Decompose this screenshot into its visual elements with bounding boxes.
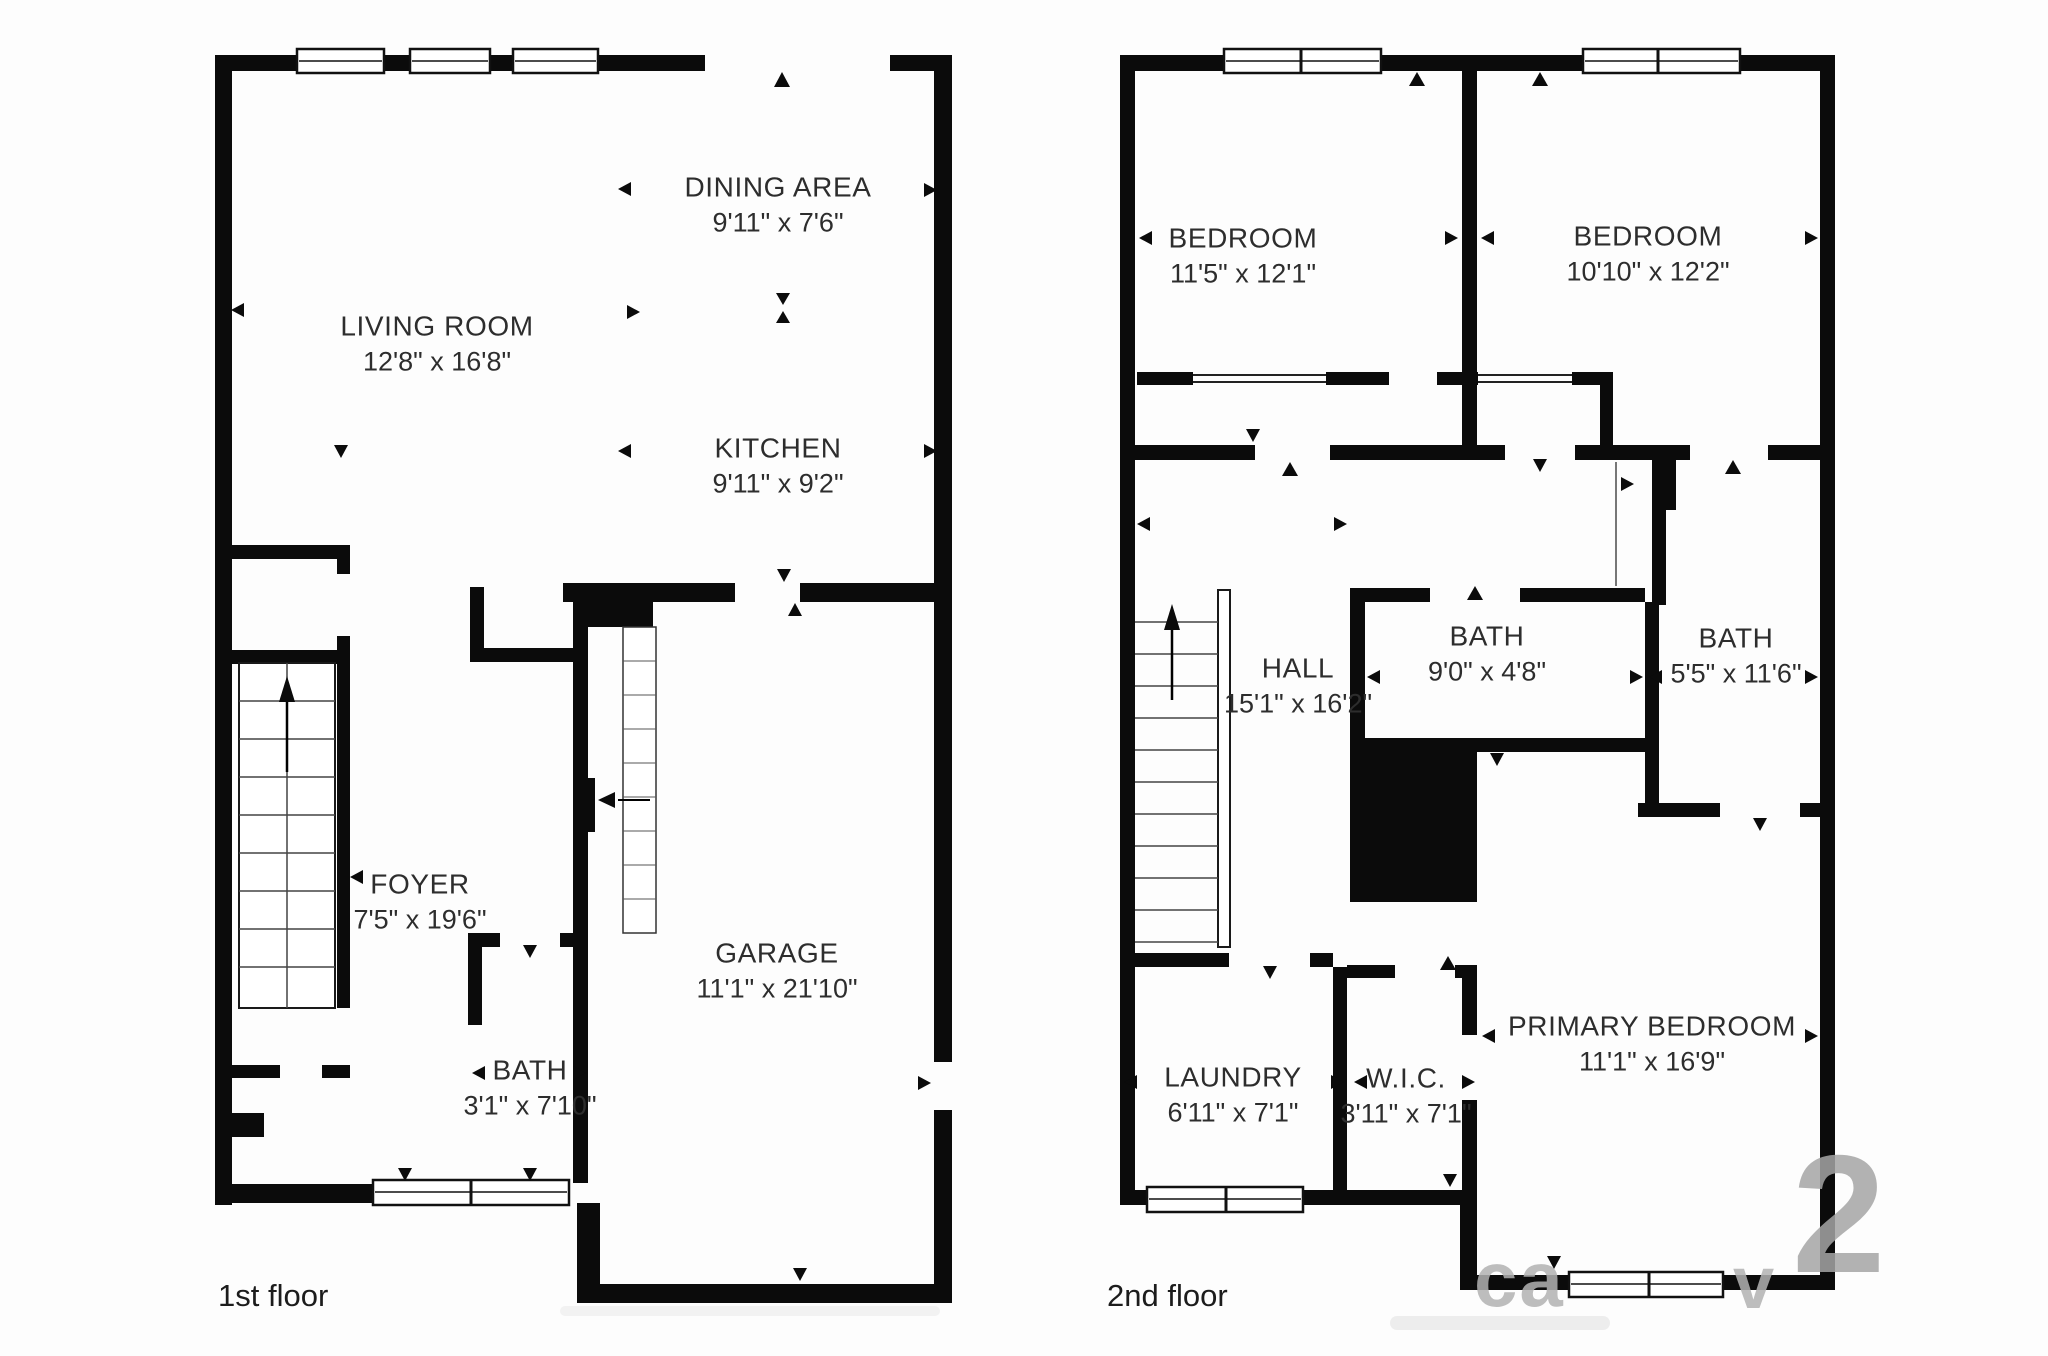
floor2-stairs-icon bbox=[1135, 590, 1230, 947]
room-label-living-room: LIVING ROOM 12'8" x 16'8" bbox=[340, 310, 533, 379]
extent-arrow-icon bbox=[1481, 231, 1494, 245]
door-arrow-icon bbox=[788, 603, 802, 616]
window-icon bbox=[1224, 49, 1381, 73]
door-arrow-icon bbox=[1263, 966, 1277, 979]
room-label-kitchen: KITCHEN 9'11" x 9'2" bbox=[712, 432, 843, 501]
room-name: BATH bbox=[1670, 622, 1801, 655]
window-icon bbox=[410, 49, 490, 73]
room-dims: 11'1" x 16'9" bbox=[1508, 1046, 1796, 1079]
room-label-wic: W.I.C. 3'11" x 7'1" bbox=[1340, 1062, 1471, 1131]
room-name: BATH bbox=[1428, 620, 1546, 653]
room-label-bath-1: BATH 3'1" x 7'10" bbox=[463, 1054, 596, 1123]
scan-artifacts bbox=[560, 1306, 1610, 1330]
floor1-garage-stairs-icon bbox=[598, 627, 656, 933]
room-label-bath-right: BATH 5'5" x 11'6" bbox=[1670, 622, 1801, 691]
door-arrow-icon bbox=[918, 1076, 931, 1090]
window-icon bbox=[373, 1180, 569, 1205]
door-arrow-icon bbox=[523, 945, 537, 958]
room-name: BEDROOM bbox=[1169, 222, 1318, 255]
room-label-bedroom-left: BEDROOM 11'5" x 12'1" bbox=[1169, 222, 1318, 291]
floor2-closet-openings bbox=[1193, 375, 1616, 586]
window-icon bbox=[1569, 1272, 1723, 1297]
door-arrow-icon bbox=[774, 72, 790, 87]
watermark-fragment: v bbox=[1733, 1240, 1776, 1325]
extent-arrow-icon bbox=[776, 293, 790, 305]
extent-arrow-icon bbox=[776, 311, 790, 323]
room-label-bath-middle: BATH 9'0" x 4'8" bbox=[1428, 620, 1546, 689]
extent-arrow-icon bbox=[1805, 231, 1818, 245]
room-name: DINING AREA bbox=[684, 171, 871, 204]
extent-arrow-icon bbox=[618, 182, 631, 196]
door-arrow-icon bbox=[1532, 72, 1548, 86]
room-dims: 11'1" x 21'10" bbox=[696, 973, 857, 1006]
door-arrow-icon bbox=[1440, 956, 1456, 970]
room-dims: 3'11" x 7'1" bbox=[1340, 1098, 1471, 1131]
room-label-bedroom-right: BEDROOM 10'10" x 12'2" bbox=[1566, 220, 1729, 289]
extent-arrow-icon bbox=[1137, 517, 1150, 531]
window-icon bbox=[1583, 49, 1740, 73]
room-name: PRIMARY BEDROOM bbox=[1508, 1010, 1796, 1043]
room-dims: 5'5" x 11'6" bbox=[1670, 658, 1801, 691]
extent-arrow-icon bbox=[1805, 670, 1818, 684]
extent-arrow-icon bbox=[618, 444, 631, 458]
room-dims: 12'8" x 16'8" bbox=[340, 346, 533, 379]
room-name: LAUNDRY bbox=[1164, 1061, 1302, 1094]
floor1-foyer-stairs-icon bbox=[239, 663, 335, 1008]
extent-arrow-icon bbox=[231, 303, 244, 317]
window-icon bbox=[513, 49, 598, 73]
room-dims: 10'10" x 12'2" bbox=[1566, 256, 1729, 289]
window-icon bbox=[1147, 1187, 1303, 1212]
door-arrow-icon bbox=[1753, 818, 1767, 831]
door-arrow-icon bbox=[1409, 72, 1425, 86]
floor1-windows bbox=[297, 49, 598, 1205]
room-name: BEDROOM bbox=[1566, 220, 1729, 253]
door-arrow-icon bbox=[1490, 753, 1504, 766]
room-name: W.I.C. bbox=[1340, 1062, 1471, 1095]
floor2-title: 2nd floor bbox=[1107, 1278, 1228, 1314]
floor1-title: 1st floor bbox=[218, 1278, 328, 1314]
room-label-primary-bedroom: PRIMARY BEDROOM 11'1" x 16'9" bbox=[1508, 1010, 1796, 1079]
room-name: LIVING ROOM bbox=[340, 310, 533, 343]
room-dims: 11'5" x 12'1" bbox=[1169, 258, 1318, 291]
room-name: GARAGE bbox=[696, 937, 857, 970]
watermark-fragment: ca bbox=[1474, 1234, 1565, 1325]
extent-arrow-icon bbox=[1334, 517, 1347, 531]
door-arrow-icon bbox=[1282, 462, 1298, 476]
room-dims: 9'11" x 9'2" bbox=[712, 468, 843, 501]
room-label-foyer: FOYER 7'5" x 19'6" bbox=[353, 868, 486, 937]
extent-arrow-icon bbox=[1482, 1029, 1495, 1043]
door-arrow-icon bbox=[777, 569, 791, 582]
window-icon bbox=[297, 49, 384, 73]
room-dims: 3'1" x 7'10" bbox=[463, 1090, 596, 1123]
door-arrow-icon bbox=[1725, 460, 1741, 474]
room-dims: 9'0" x 4'8" bbox=[1428, 656, 1546, 689]
room-label-garage: GARAGE 11'1" x 21'10" bbox=[696, 937, 857, 1006]
door-arrow-icon bbox=[1467, 586, 1483, 600]
door-arrow-icon bbox=[1533, 459, 1547, 472]
room-dims: 15'1" x 16'2" bbox=[1224, 688, 1372, 721]
extent-arrow-icon bbox=[1805, 1029, 1818, 1043]
room-dims: 7'5" x 19'6" bbox=[353, 904, 486, 937]
room-name: FOYER bbox=[353, 868, 486, 901]
extent-arrow-icon bbox=[627, 305, 640, 319]
door-arrow-icon bbox=[793, 1268, 807, 1281]
room-label-dining-area: DINING AREA 9'11" x 7'6" bbox=[684, 171, 871, 240]
room-dims: 6'11" x 7'1" bbox=[1164, 1097, 1302, 1130]
watermark-fragment: 2 bbox=[1792, 1118, 1887, 1311]
floorplan-page: DINING AREA 9'11" x 7'6" LIVING ROOM 12'… bbox=[0, 0, 2048, 1356]
door-arrow-icon bbox=[1443, 1174, 1457, 1187]
door-arrow-icon bbox=[1246, 429, 1260, 442]
room-dims: 9'11" x 7'6" bbox=[684, 207, 871, 240]
room-name: BATH bbox=[463, 1054, 596, 1087]
extent-arrow-icon bbox=[1139, 231, 1152, 245]
extent-arrow-icon bbox=[1445, 231, 1458, 245]
room-name: KITCHEN bbox=[712, 432, 843, 465]
room-label-hall: HALL 15'1" x 16'2" bbox=[1224, 652, 1372, 721]
room-name: HALL bbox=[1224, 652, 1372, 685]
door-arrow-icon bbox=[1621, 477, 1634, 491]
extent-arrow-icon bbox=[1630, 670, 1643, 684]
door-arrow-icon bbox=[334, 445, 348, 458]
room-label-laundry: LAUNDRY 6'11" x 7'1" bbox=[1164, 1061, 1302, 1130]
